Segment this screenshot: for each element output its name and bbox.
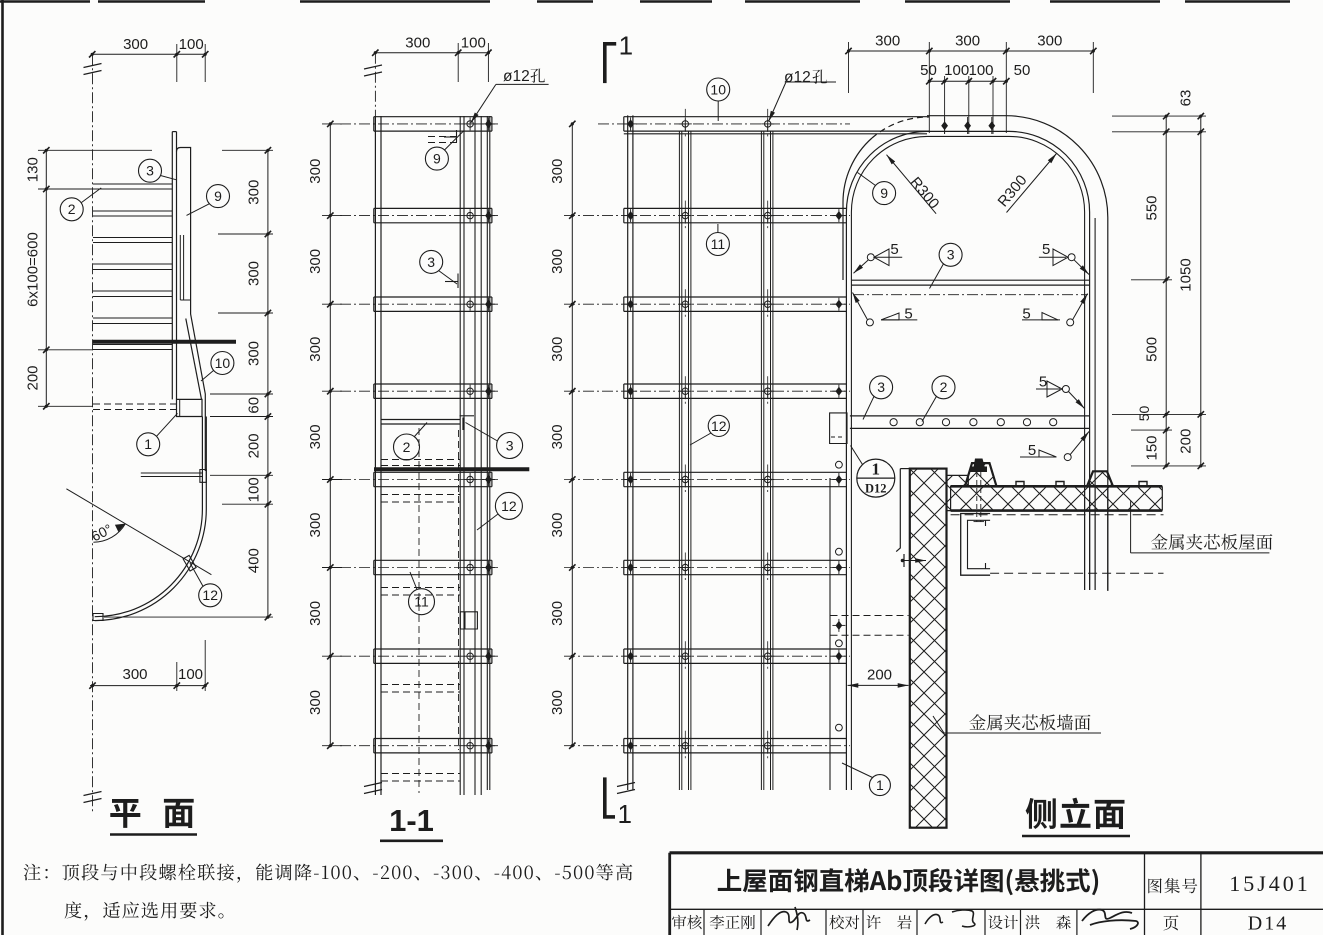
svg-text:50: 50 [1014, 62, 1031, 79]
svg-text:500: 500 [1144, 337, 1161, 362]
svg-text:300: 300 [405, 35, 430, 52]
svg-text:300: 300 [307, 601, 324, 626]
svg-text:300: 300 [549, 337, 566, 362]
svg-text:ø12: ø12 [784, 69, 811, 86]
svg-text:11: 11 [414, 594, 429, 610]
svg-text:12: 12 [711, 418, 727, 434]
svg-text:5: 5 [1042, 241, 1050, 258]
svg-text:300: 300 [122, 666, 147, 683]
svg-text:300: 300 [1037, 33, 1062, 50]
svg-text:D14: D14 [1248, 913, 1288, 935]
svg-text:100: 100 [968, 62, 993, 79]
svg-text:300: 300 [307, 159, 324, 184]
svg-text:3: 3 [146, 163, 154, 179]
svg-text:5: 5 [890, 241, 898, 258]
svg-text:3: 3 [427, 254, 435, 270]
svg-text:2: 2 [68, 201, 76, 217]
svg-text:400: 400 [246, 548, 263, 573]
svg-text:60: 60 [246, 397, 263, 414]
svg-text:100: 100 [178, 666, 203, 683]
svg-text:300: 300 [307, 690, 324, 715]
svg-text:300: 300 [549, 424, 566, 449]
svg-text:5: 5 [1039, 374, 1047, 391]
svg-text:6x100=600: 6x100=600 [25, 232, 42, 307]
svg-text:200: 200 [246, 433, 263, 458]
svg-text:1: 1 [876, 777, 884, 793]
svg-text:5: 5 [1028, 442, 1036, 459]
svg-text:100: 100 [246, 477, 263, 502]
svg-text:10: 10 [215, 355, 231, 371]
svg-text:5: 5 [1022, 306, 1030, 323]
svg-text:300: 300 [549, 690, 566, 715]
svg-text:5: 5 [904, 306, 912, 323]
svg-text:100: 100 [461, 35, 486, 52]
svg-text:63: 63 [1178, 90, 1195, 107]
svg-text:1: 1 [144, 436, 152, 452]
svg-text:2: 2 [403, 439, 411, 455]
svg-text:300: 300 [307, 249, 324, 274]
svg-text:100: 100 [944, 62, 969, 79]
svg-text:50: 50 [1136, 406, 1152, 422]
svg-text:200: 200 [867, 667, 892, 684]
svg-text:1: 1 [872, 460, 881, 479]
svg-text:550: 550 [1144, 195, 1161, 220]
svg-text:3: 3 [877, 379, 885, 395]
svg-text:200: 200 [25, 365, 42, 390]
svg-text:200: 200 [1178, 429, 1195, 454]
svg-text:300: 300 [246, 341, 263, 366]
svg-text:11: 11 [711, 236, 726, 252]
svg-text:3: 3 [506, 437, 514, 453]
svg-text:1-1: 1-1 [389, 803, 434, 838]
svg-text:300: 300 [955, 33, 980, 50]
svg-text:300: 300 [549, 249, 566, 274]
svg-text:100: 100 [179, 36, 204, 53]
svg-text:300: 300 [549, 601, 566, 626]
svg-text:D12: D12 [865, 482, 887, 496]
svg-text:300: 300 [246, 261, 263, 286]
svg-text:300: 300 [246, 180, 263, 205]
svg-text:300: 300 [307, 424, 324, 449]
svg-text:300: 300 [307, 512, 324, 537]
svg-text:1: 1 [619, 31, 633, 61]
svg-text:50: 50 [920, 62, 937, 79]
svg-text:1: 1 [618, 799, 632, 829]
svg-text:300: 300 [307, 337, 324, 362]
svg-text:10: 10 [710, 81, 726, 97]
svg-text:300: 300 [549, 512, 566, 537]
svg-text:9: 9 [214, 188, 222, 204]
svg-text:9: 9 [880, 185, 888, 201]
svg-text:300: 300 [123, 36, 148, 53]
svg-text:130: 130 [25, 157, 42, 182]
svg-text:3: 3 [947, 247, 955, 263]
svg-text:300: 300 [875, 33, 900, 50]
svg-text:12: 12 [202, 587, 218, 603]
svg-text:9: 9 [433, 151, 441, 167]
svg-text:15J401: 15J401 [1229, 871, 1311, 896]
svg-text:2: 2 [940, 379, 948, 395]
svg-text:12: 12 [501, 498, 517, 514]
svg-text:1050: 1050 [1178, 258, 1195, 291]
svg-text:150: 150 [1144, 435, 1161, 460]
svg-text:ø12: ø12 [503, 68, 530, 85]
svg-text:300: 300 [549, 159, 566, 184]
